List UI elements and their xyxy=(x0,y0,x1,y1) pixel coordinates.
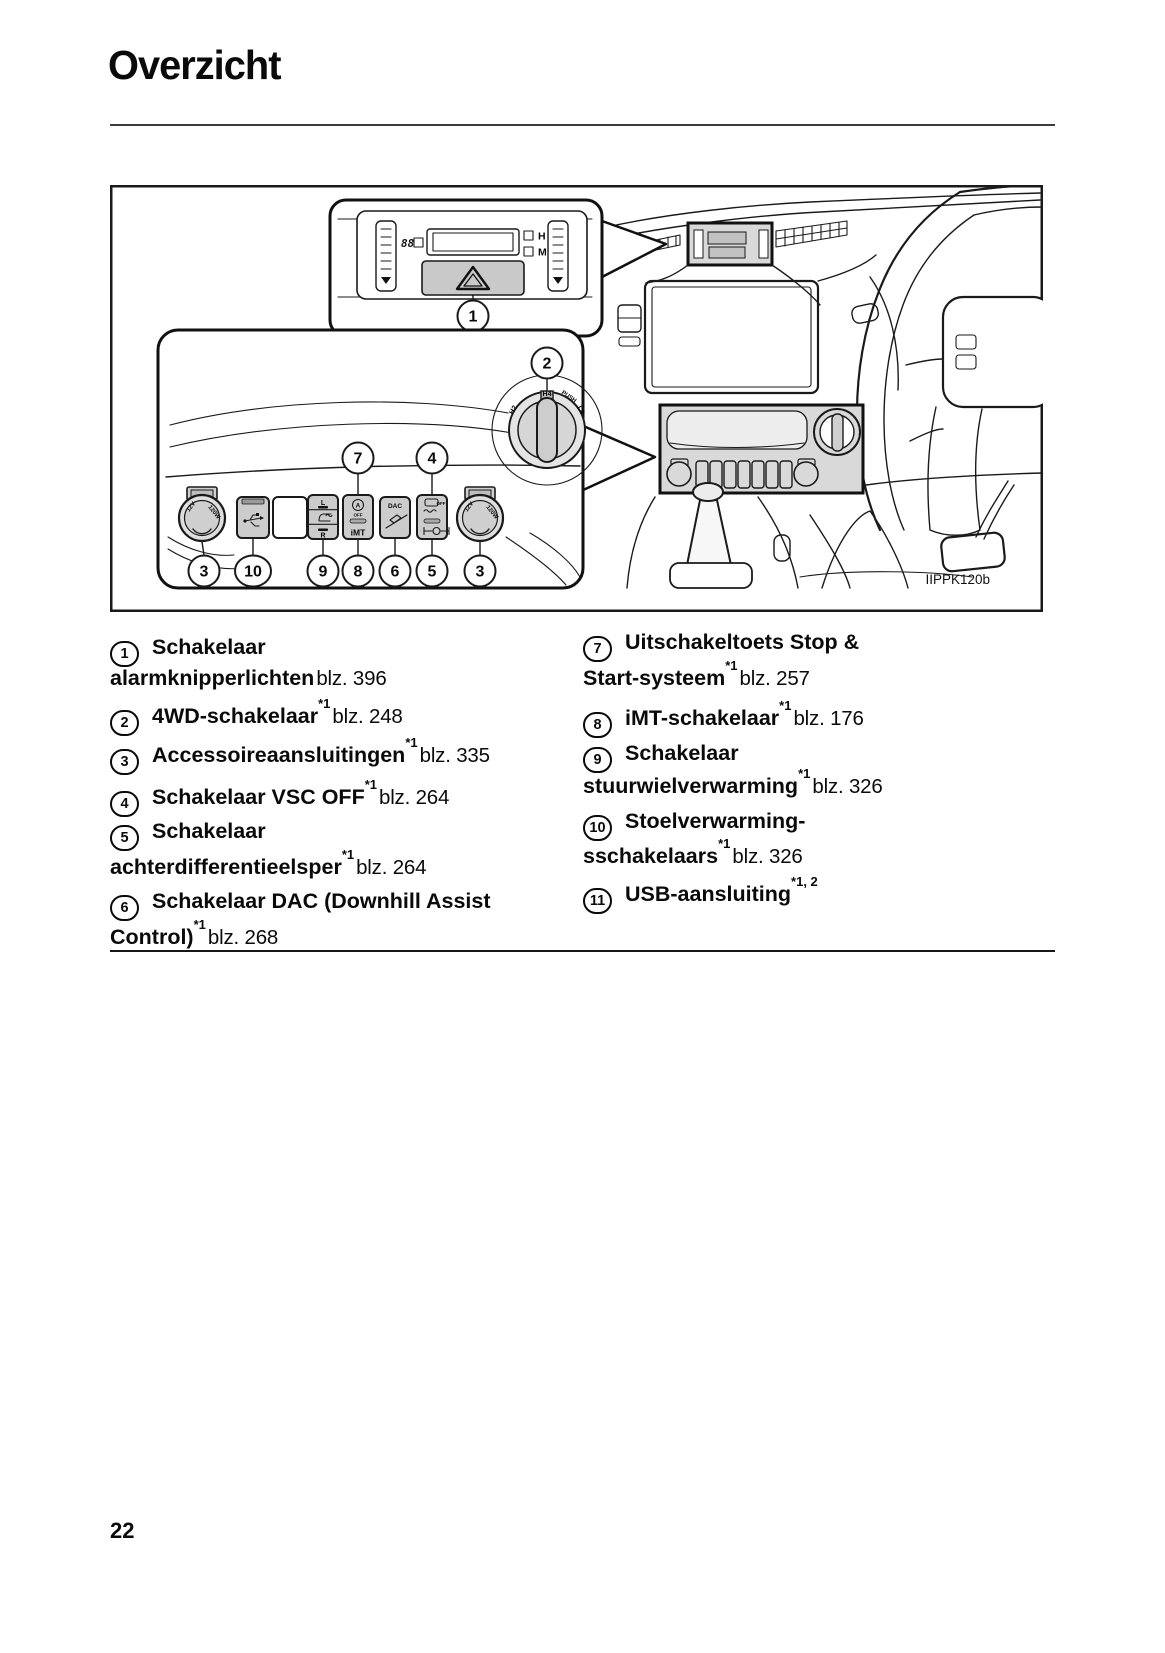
callout-2: 2 xyxy=(543,356,552,373)
top-divider xyxy=(110,124,1055,126)
page-ref: blz. 264 xyxy=(379,786,449,809)
legend-item-5-cont: achterdifferentieelsper*1blz. 264 xyxy=(110,848,426,876)
legend-text: Uitschakeltoets Stop & xyxy=(625,630,859,654)
page-ref: blz. 264 xyxy=(356,856,426,879)
page-ref: blz. 335 xyxy=(420,744,490,767)
callout-3a: 3 xyxy=(200,564,209,581)
legend-item-8: 8iMT-schakelaar*1blz. 176 xyxy=(583,699,864,727)
page-ref: blz. 326 xyxy=(812,775,882,798)
dial-h4-label: H4 xyxy=(543,391,552,398)
callout-5: 5 xyxy=(428,564,437,581)
legend-text: Schakelaar xyxy=(152,635,266,659)
page-ref: blz. 248 xyxy=(332,705,402,728)
stopstart-imt-switches: A OFF iMT xyxy=(343,495,373,539)
callout-9: 9 xyxy=(319,564,328,581)
callout-number-2: 2 xyxy=(110,710,139,736)
stopstart-off-label: OFF xyxy=(354,513,363,518)
legend-item-1: 1Schakelaar xyxy=(110,628,268,656)
legend-text: Schakelaar DAC (Downhill Assist xyxy=(152,889,491,913)
legend-text: 4WD-schakelaar xyxy=(152,704,318,728)
vsc-diff-switches: OFF xyxy=(417,495,449,539)
page-ref: blz. 257 xyxy=(740,667,810,690)
legend-text: Stoelverwarming- xyxy=(625,809,805,833)
legend-item-7: 7Uitschakeltoets Stop & xyxy=(583,628,859,656)
inset-hazard-panel: 88 H M 1 xyxy=(330,200,602,336)
page-ref: blz. 268 xyxy=(208,926,278,949)
callout-1: 1 xyxy=(469,309,478,326)
bottom-divider xyxy=(110,950,1055,952)
legend-text: USB-aansluiting xyxy=(625,882,791,906)
callout-number-11: 11 xyxy=(583,888,612,914)
legend-text: Control) xyxy=(110,925,194,949)
page-ref: blz. 396 xyxy=(316,667,386,690)
legend-text: Schakelaar xyxy=(625,741,739,765)
page-number: 22 xyxy=(110,1518,134,1544)
dac-button: DAC xyxy=(380,497,410,538)
auto-stop-a: A xyxy=(356,503,361,510)
dashboard-diagram: IIPPK120b 88 H M xyxy=(110,185,1043,612)
legend-item-10: 10Stoelverwarming- xyxy=(583,807,805,835)
vsc-off-label: OFF xyxy=(437,501,446,506)
callout-6: 6 xyxy=(391,564,400,581)
legend-text: Schakelaar VSC OFF xyxy=(152,785,365,809)
legend-item-5: 5Schakelaar xyxy=(110,817,266,845)
legend-item-10-cont: sschakelaars*1blz. 326 xyxy=(583,837,803,865)
page-ref: blz. 176 xyxy=(793,707,863,730)
legend-item-9: 9Schakelaar xyxy=(583,739,739,767)
clock-hour-label: H xyxy=(538,231,546,243)
callout-number-3: 3 xyxy=(110,749,139,775)
manual-page: Overzicht xyxy=(0,0,1165,1653)
legend-text: sschakelaars xyxy=(583,844,718,868)
legend-text: iMT-schakelaar xyxy=(625,706,779,730)
legend-item-11: 11USB-aansluiting*1, 2 xyxy=(583,875,818,903)
callout-number-4: 4 xyxy=(110,791,139,817)
inset-switch-panel: H4 H2 L4 PUSH 2 12V 120W xyxy=(158,330,602,588)
callout-8: 8 xyxy=(354,564,363,581)
infotainment-screen xyxy=(645,281,818,393)
hazard-panel-highlight xyxy=(688,223,772,265)
legend-item-4: 4Schakelaar VSC OFF*1blz. 264 xyxy=(110,778,449,806)
imt-label: iMT xyxy=(351,528,366,538)
figure-code: IIPPK120b xyxy=(925,572,990,587)
callout-number-8: 8 xyxy=(583,712,612,738)
legend-item-7-cont: Start-systeem*1blz. 257 xyxy=(583,659,810,687)
legend-item-9-cont: stuurwielverwarming*1blz. 326 xyxy=(583,767,883,795)
seat-left-label: L xyxy=(321,500,326,507)
dac-label: DAC xyxy=(388,503,402,510)
legend-item-1-cont: alarmknipperlichtenblz. 396 xyxy=(110,659,387,687)
legend-item-2: 24WD-schakelaar*1blz. 248 xyxy=(110,697,403,725)
legend-text: achterdifferentieelsper xyxy=(110,855,342,879)
legend-text: Accessoireaansluitingen xyxy=(152,743,405,767)
clock-digits: 88 xyxy=(401,237,415,250)
legend-item-3: 3Accessoireaansluitingen*1blz. 335 xyxy=(110,736,490,764)
callout-4: 4 xyxy=(428,451,437,468)
page-ref: blz. 326 xyxy=(732,845,802,868)
callout-7: 7 xyxy=(354,451,363,468)
switch-panel-highlight xyxy=(660,405,863,493)
usb-port-button xyxy=(237,497,269,538)
callout-3b: 3 xyxy=(476,564,485,581)
clock-minute-label: M xyxy=(538,247,547,259)
legend-text: Start-systeem xyxy=(583,666,725,690)
page-title: Overzicht xyxy=(108,42,281,89)
legend-text: alarmknipperlichten xyxy=(110,666,314,690)
seat-heater-switches: L R xyxy=(308,495,338,540)
blank-switch xyxy=(273,497,307,538)
legend-item-6: 6Schakelaar DAC (Downhill Assist xyxy=(110,887,491,915)
callout-10: 10 xyxy=(244,564,262,581)
legend-text: Schakelaar xyxy=(152,819,266,843)
legend-item-6-cont: Control)*1blz. 268 xyxy=(110,918,278,946)
legend-text: stuurwielverwarming xyxy=(583,774,798,798)
